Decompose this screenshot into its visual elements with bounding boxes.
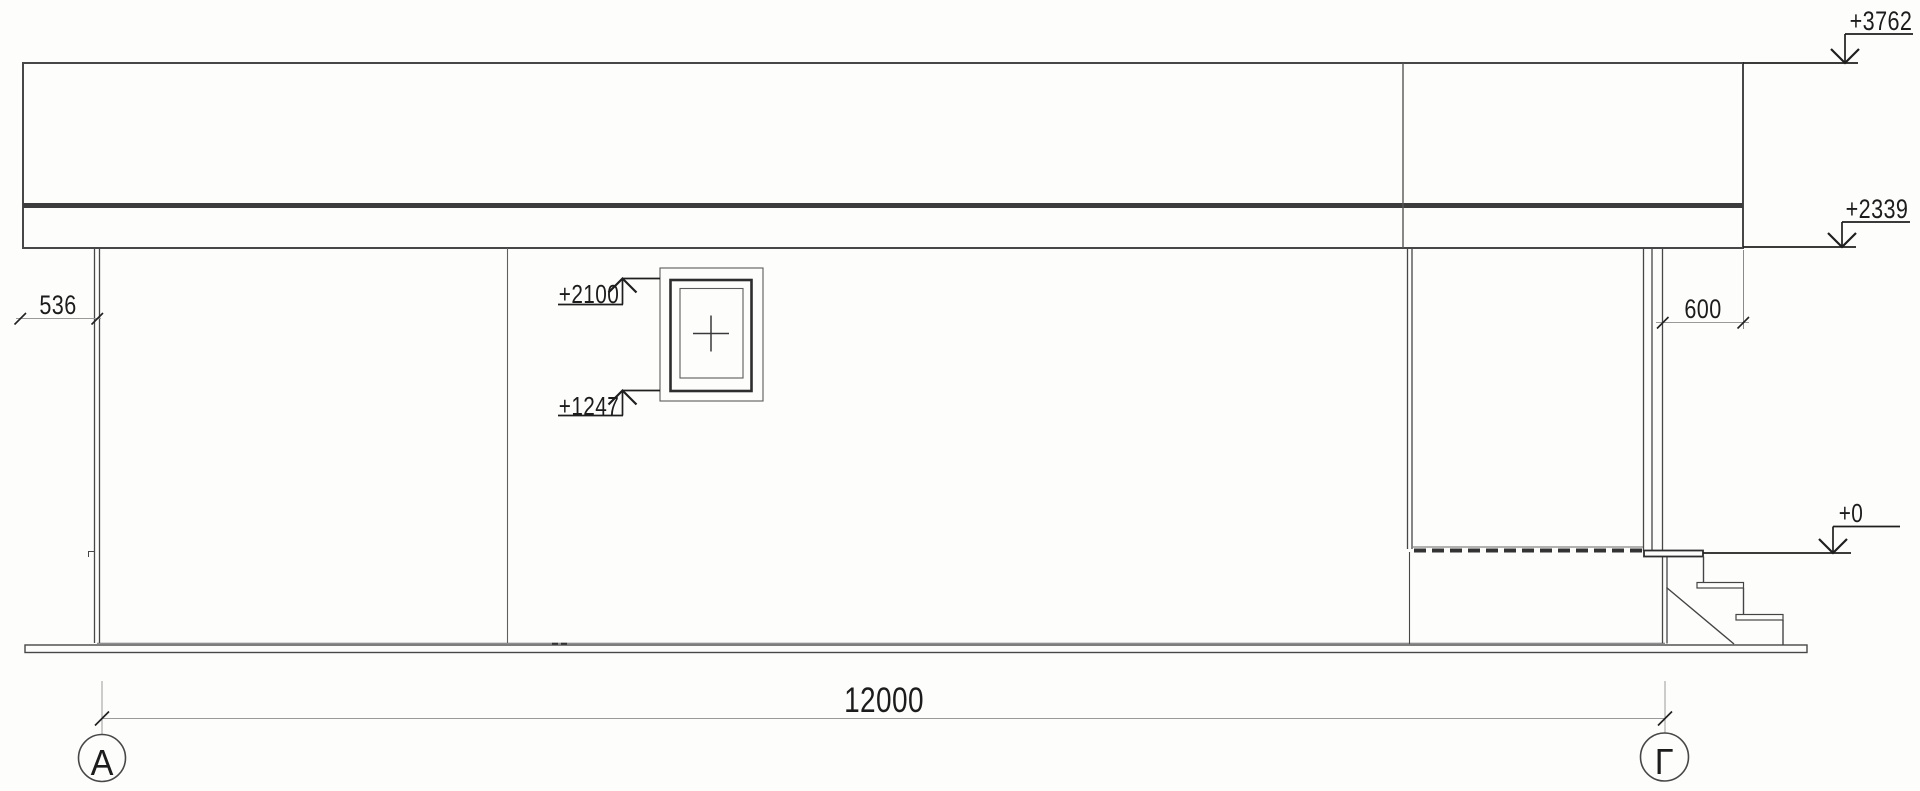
stair-tread-2	[1736, 615, 1783, 621]
stair-tread-1	[1697, 583, 1744, 589]
mark-shelf-leg	[1833, 527, 1900, 554]
elevation-mark-eaves	[1743, 222, 1910, 247]
wall-edges	[89, 248, 1668, 644]
window-center-cross	[693, 316, 729, 352]
dim-label-left-overhang: 536	[34, 292, 82, 319]
roof-fascia-band	[23, 63, 1743, 248]
mark-shelf-leg	[1842, 222, 1910, 247]
porch-deck	[1413, 547, 1643, 551]
mark-shelf-leg	[1845, 34, 1913, 63]
dim-label-right-overhang: 600	[1679, 296, 1727, 323]
elevation-drawing-canvas: +3762 +2339 +0 +2100 +1247 536 600 12000…	[0, 0, 1920, 791]
axis-label-left: А	[74, 745, 131, 781]
entry-stairs	[1644, 551, 1783, 646]
axis-bubbles	[79, 733, 1689, 782]
level-label-window-sill: +1247	[557, 393, 621, 419]
dim-label-overall-span: 12000	[844, 683, 924, 718]
foundation-slab	[25, 645, 1807, 653]
elevation-mark-roof-top	[1743, 34, 1913, 63]
level-label-roof-top: +3762	[1841, 8, 1920, 35]
window	[660, 268, 763, 401]
level-label-window-head: +2100	[557, 281, 621, 307]
dimensions	[15, 250, 1750, 734]
porch-slab-edge	[1644, 551, 1703, 557]
left-corner-floor-notch	[89, 552, 95, 558]
level-label-floor: +0	[1827, 500, 1875, 526]
stair-stringer-diagonal	[1667, 588, 1735, 645]
level-label-eaves: +2339	[1837, 196, 1917, 223]
elevation-linework	[0, 0, 1920, 791]
axis-label-right: Г	[1636, 744, 1693, 780]
elevation-mark-floor	[1703, 527, 1900, 554]
roof-band-outline	[23, 63, 1743, 248]
